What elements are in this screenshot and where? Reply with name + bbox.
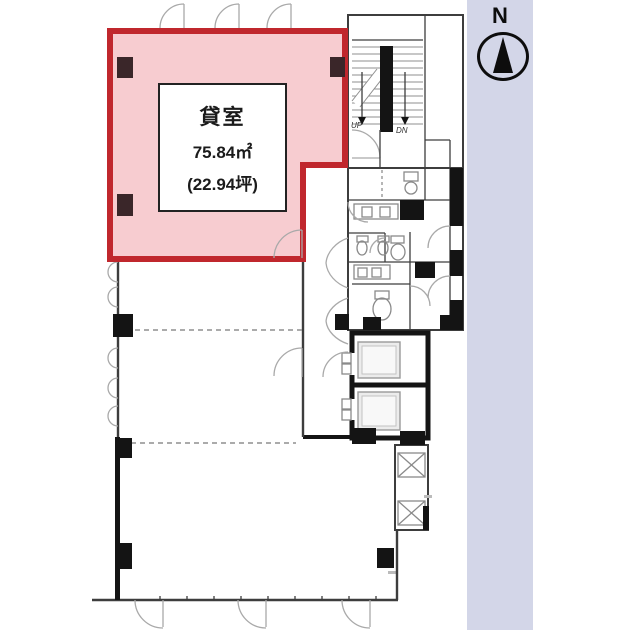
side-accent-strip — [467, 0, 533, 630]
column-left-3 — [116, 543, 132, 569]
compass-north-label: N — [467, 3, 533, 29]
floor-plan-drawing — [0, 0, 630, 630]
column-left-1 — [113, 314, 133, 337]
stairs-dn-label: DN — [396, 126, 408, 135]
column-left-2 — [116, 438, 132, 458]
toilet-core — [335, 168, 463, 330]
elevator-block — [303, 333, 428, 444]
compass-icon — [477, 32, 529, 81]
duct-shaft — [388, 431, 432, 574]
stairs-up-label: UP — [351, 121, 362, 130]
compass-needle-icon — [493, 37, 513, 73]
middle-room-door-arc — [274, 348, 302, 376]
room-name: 貸室 — [200, 101, 246, 131]
corridor-doors — [323, 238, 348, 377]
stairwell — [348, 15, 463, 168]
bottom-room — [92, 530, 398, 628]
stair-center-wall — [380, 46, 393, 132]
column-bottom-right — [377, 548, 394, 568]
middle-room — [122, 259, 303, 443]
floor-plan-page: 貸室 75.84㎡ (22.94坪) UP DN N — [0, 0, 630, 630]
top-window-arcs — [160, 4, 291, 28]
room-area-sqm: 75.84㎡ — [193, 138, 253, 163]
room-info-label: 貸室 75.84㎡ (22.94坪) — [158, 83, 287, 212]
left-wall — [108, 230, 133, 600]
bottom-door-arcs — [135, 600, 370, 628]
room-area-tsubo: (22.94坪) — [187, 170, 258, 195]
